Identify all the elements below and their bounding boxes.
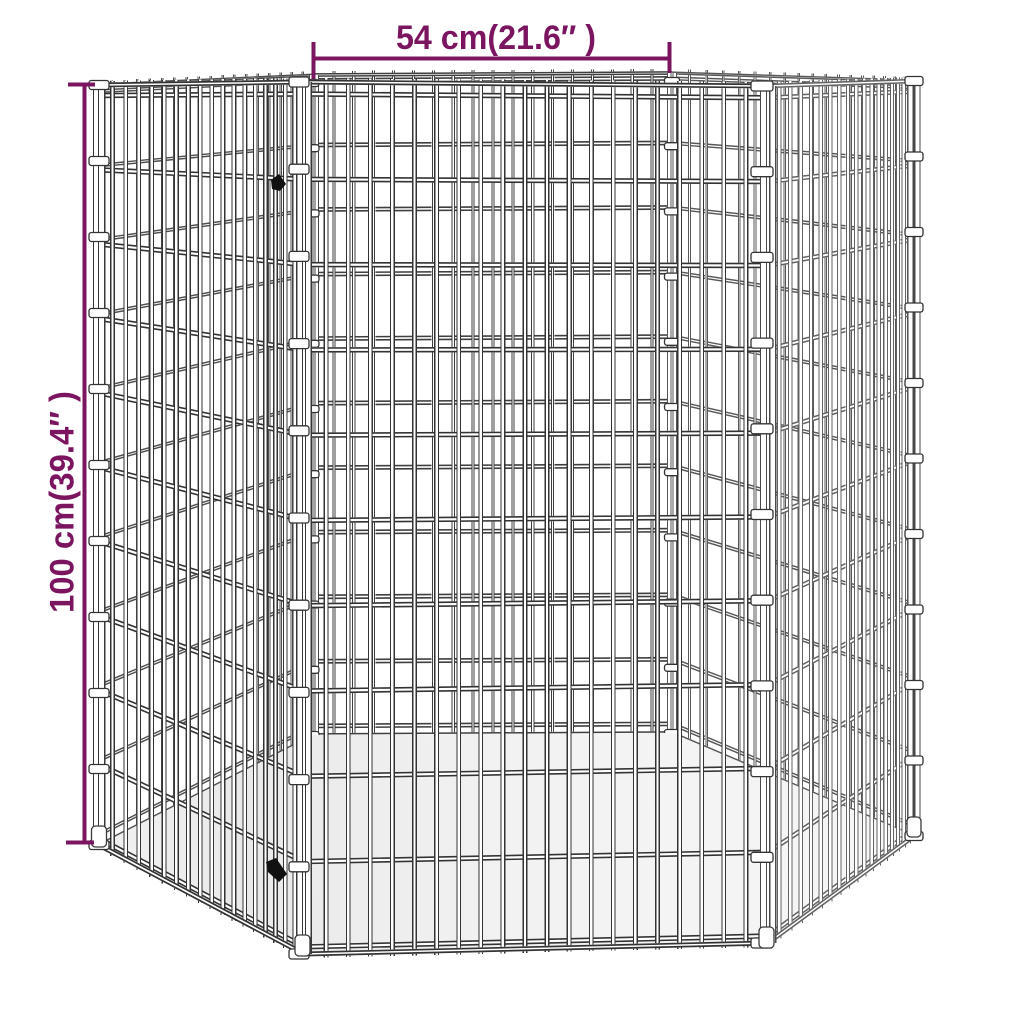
svg-text:54 cm(21.6″ ): 54 cm(21.6″ ) <box>396 19 596 57</box>
svg-text:100 cm(39.4″ ): 100 cm(39.4″ ) <box>44 391 82 613</box>
